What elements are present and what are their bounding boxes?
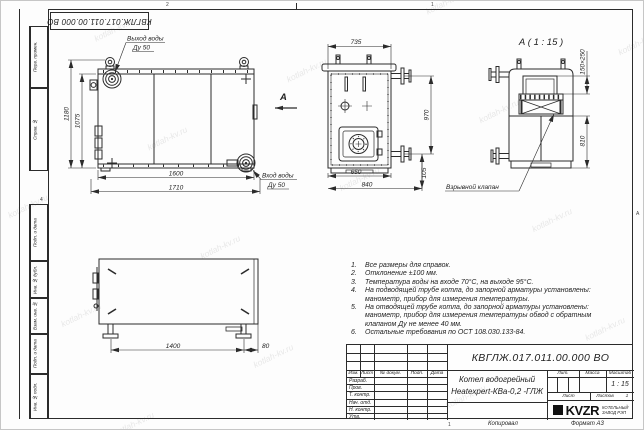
row-nachotd: Нач. отд. bbox=[349, 401, 371, 406]
company-name-line2: ЗАВОД РЭП bbox=[602, 410, 628, 415]
note-number: 3. bbox=[351, 279, 365, 287]
lit-label: Лит. bbox=[547, 370, 579, 377]
note-text: На подводящей трубе котла, до запорной а… bbox=[365, 287, 617, 304]
explosion-valve-label: Взрывной клапан bbox=[446, 183, 499, 191]
drawing-sheet: 2 1 А 4 1 КВГЛЖ.017.011.00.000 ВО Перв. … bbox=[0, 0, 644, 430]
copied-label: Копировал bbox=[488, 421, 518, 427]
kvzr-logo-text: KVZR bbox=[566, 403, 599, 418]
company-name: КОТЕЛЬНЫЙ ЗАВОД РЭП bbox=[602, 405, 628, 415]
col-izm: Изм. bbox=[347, 370, 360, 377]
col-doc: № докум. bbox=[374, 370, 407, 377]
sheet-label: Лист bbox=[547, 392, 590, 400]
row-nkontr: Н. контр. bbox=[349, 408, 372, 413]
kvzr-logo-icon bbox=[553, 405, 563, 415]
row-razrab: Разраб. bbox=[349, 379, 367, 384]
technical-notes: 1.Все размеры для справок. 2.Отклонение … bbox=[351, 262, 617, 338]
col-list: Лист bbox=[360, 370, 374, 377]
col-data: Дата bbox=[427, 370, 447, 377]
scale-value: 1 : 15 bbox=[606, 377, 634, 392]
mass-label: Масса bbox=[579, 370, 606, 377]
note-item: 6.Остальные требования по ОСТ 108.030.13… bbox=[351, 329, 617, 337]
note-number: 1. bbox=[351, 262, 365, 270]
note-number: 4. bbox=[351, 287, 365, 304]
note-text: На отводящей трубе котла, до запорной ар… bbox=[365, 304, 617, 329]
row-prov: Пров. bbox=[349, 386, 362, 391]
format-label: Формат А3 bbox=[571, 421, 604, 427]
title-block-designation: КВГЛЖ.017.011.00.000 ВО bbox=[447, 345, 634, 370]
note-item: 5.На отводящей трубе котла, до запорной … bbox=[351, 304, 617, 329]
col-podp: Подп. bbox=[407, 370, 427, 377]
note-text: Температура воды на входе 70°С, на выход… bbox=[365, 279, 617, 287]
note-text: Остальные требования по ОСТ 108.030.133-… bbox=[365, 329, 617, 337]
note-item: 4.На подводящей трубе котла, до запорной… bbox=[351, 287, 617, 304]
note-item: 3.Температура воды на входе 70°С, на вых… bbox=[351, 279, 617, 287]
scale-label: Масштаб bbox=[606, 370, 634, 377]
product-name-line1: Котел водогрейный bbox=[459, 374, 535, 386]
product-name: Котел водогрейный Heatexpert-КВа-0,2 -ГЛ… bbox=[447, 370, 547, 402]
row-utv: Утв. bbox=[349, 415, 360, 420]
note-text: Все размеры для справок. bbox=[365, 262, 617, 270]
row-tkontr: Т. контр. bbox=[349, 393, 371, 398]
note-number: 5. bbox=[351, 304, 365, 329]
company-cell: KVZR КОТЕЛЬНЫЙ ЗАВОД РЭП bbox=[548, 401, 633, 419]
note-item: 2.Отклонение ±100 мм. bbox=[351, 270, 617, 278]
note-number: 2. bbox=[351, 270, 365, 278]
note-number: 6. bbox=[351, 329, 365, 337]
note-text: Отклонение ±100 мм. bbox=[365, 270, 617, 278]
sheets-label: Листов bbox=[590, 392, 620, 400]
sheets-value: 1 bbox=[620, 392, 634, 400]
product-name-line2: Heatexpert-КВа-0,2 -ГЛЖ bbox=[451, 386, 543, 398]
note-item: 1.Все размеры для справок. bbox=[351, 262, 617, 270]
title-block: Изм. Лист № докум. Подп. Дата Разраб. Пр… bbox=[346, 344, 633, 419]
